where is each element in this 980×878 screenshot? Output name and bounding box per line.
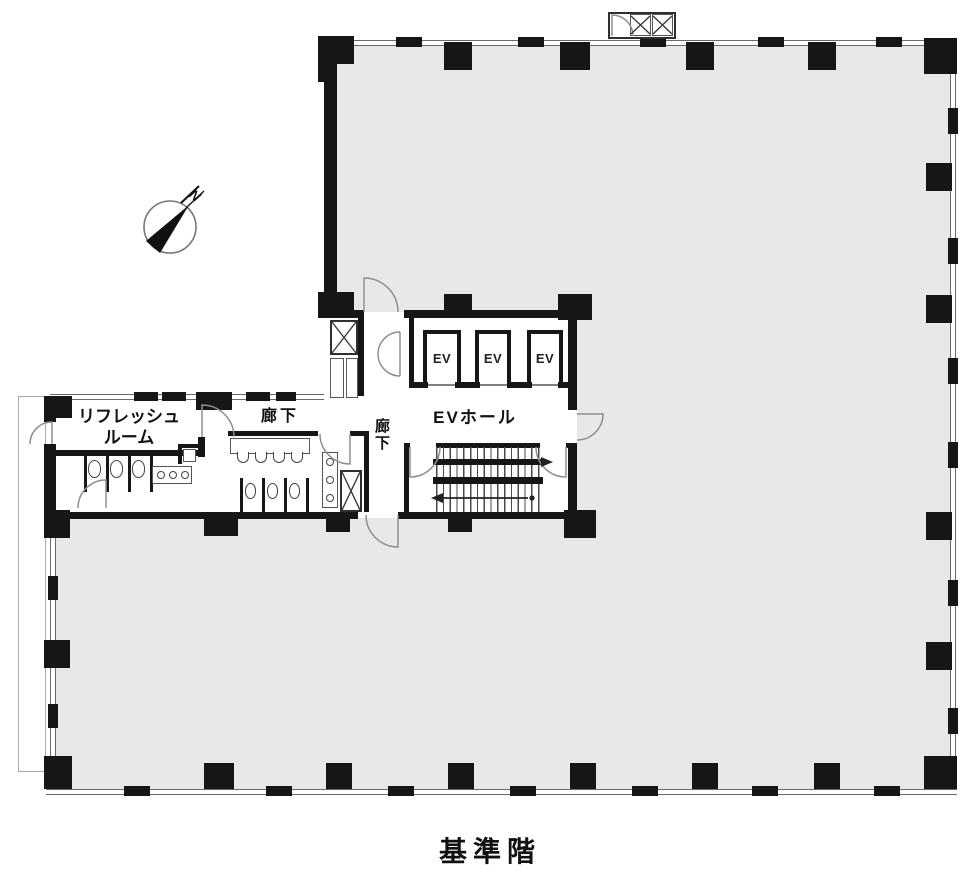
urinal <box>273 452 285 463</box>
column <box>44 510 70 538</box>
wall-segment <box>46 512 358 519</box>
wall-segment <box>409 318 414 388</box>
column <box>326 512 350 532</box>
column <box>204 512 238 536</box>
elevator-car: EV <box>527 330 563 382</box>
wall-segment <box>46 789 957 795</box>
service-box <box>330 358 344 398</box>
window-dash <box>752 786 778 796</box>
north-label: N <box>186 186 205 205</box>
wall-segment <box>404 310 577 318</box>
wall-segment <box>228 431 318 436</box>
elevator-car-label: EV <box>433 351 451 366</box>
wall-segment <box>44 444 56 518</box>
column <box>448 763 474 789</box>
wall-segment <box>558 382 577 388</box>
duct-shaft <box>652 14 673 36</box>
toilet-fixture <box>245 483 256 499</box>
wall-segment <box>566 443 577 448</box>
elevator-car-label: EV <box>536 351 554 366</box>
column <box>924 756 957 789</box>
wall-segment <box>56 450 198 456</box>
column <box>318 292 354 318</box>
wall-segment <box>364 431 369 512</box>
column <box>560 42 590 70</box>
column <box>44 756 72 789</box>
refresh-room-label-line2: ルーム <box>58 427 200 448</box>
elevator-car: EV <box>475 330 511 382</box>
stair-landing-bar <box>433 477 543 484</box>
elevator-car-label: EV <box>484 351 502 366</box>
wash-basin <box>169 471 177 479</box>
window-dash <box>948 708 958 734</box>
toilet-stall-partition <box>106 456 109 492</box>
duct-shaft <box>340 470 362 512</box>
window-dash <box>134 392 158 401</box>
service-box <box>346 358 358 398</box>
column <box>444 42 472 70</box>
window-dash <box>948 108 958 134</box>
wall-segment <box>358 310 364 396</box>
window-dash <box>48 704 58 728</box>
column <box>326 763 352 789</box>
wall-segment <box>398 512 577 519</box>
column <box>692 763 718 789</box>
elevator-car: EV <box>423 330 461 382</box>
corridor-vertical-label: 廊下 <box>371 418 392 466</box>
wall-segment <box>568 444 577 518</box>
window-dash <box>396 37 422 47</box>
window-dash <box>510 786 536 796</box>
compass: N <box>144 186 205 253</box>
wash-basin <box>181 471 189 479</box>
stair-landing-bar <box>433 459 543 465</box>
window-dash <box>124 786 150 796</box>
toilet-fixture <box>88 460 101 478</box>
balcony-strip <box>18 396 46 772</box>
column <box>926 295 952 323</box>
window-dash <box>876 37 902 47</box>
duct-shaft <box>330 320 358 355</box>
toilet-fixture <box>132 460 145 478</box>
refresh-room-label-line1: リフレッシュ <box>58 406 200 427</box>
column <box>318 36 336 82</box>
column <box>558 294 592 320</box>
toilet-fixture <box>110 460 123 478</box>
refresh-room-label: リフレッシュ ルーム <box>58 406 200 448</box>
column <box>570 763 596 789</box>
window-dash <box>388 786 414 796</box>
wash-basin <box>326 458 334 466</box>
window-dash <box>632 786 658 796</box>
toilet-fixture <box>267 483 278 499</box>
column <box>196 392 232 410</box>
column <box>444 294 472 312</box>
column <box>814 763 840 789</box>
column <box>926 163 952 191</box>
floor-plan: EV EV EV <box>0 0 980 878</box>
window-dash <box>48 576 58 600</box>
urinal <box>291 452 303 463</box>
wall-segment <box>568 310 577 410</box>
window-dash <box>948 580 958 606</box>
column <box>686 42 714 70</box>
column <box>564 510 596 538</box>
column <box>924 38 957 74</box>
corridor-label: 廊下 <box>240 402 320 426</box>
toilet-stall-partition <box>240 478 243 512</box>
window-dash <box>758 37 784 47</box>
column <box>926 512 952 540</box>
column <box>448 512 472 532</box>
duct-shaft <box>630 14 651 36</box>
tenant-area-upper <box>337 45 950 312</box>
column <box>44 640 70 668</box>
window-dash <box>162 392 186 401</box>
wall-segment <box>507 382 532 388</box>
window-dash <box>518 37 544 47</box>
ev-hall-label: EVホール <box>390 403 560 428</box>
toilet-stall-partition <box>306 478 309 512</box>
wash-basin <box>157 471 165 479</box>
floor-caption: 基準階 <box>0 830 980 870</box>
window-dash <box>276 392 296 401</box>
urinal <box>255 452 267 463</box>
column <box>204 763 234 789</box>
window-dash <box>948 358 958 384</box>
toilet-stall-partition <box>84 456 87 492</box>
window-dash <box>948 442 958 468</box>
wash-basin <box>326 494 334 502</box>
wall-segment <box>404 443 409 512</box>
column <box>926 642 952 670</box>
wall-segment <box>950 40 956 789</box>
urinal <box>237 452 249 463</box>
window-dash <box>948 238 958 264</box>
wash-basin <box>326 476 334 484</box>
toilet-stall-partition <box>284 478 287 512</box>
tenant-area-right <box>577 312 950 518</box>
window-dash <box>874 786 900 796</box>
window-dash <box>246 392 270 401</box>
toilet-stall-partition <box>262 478 265 512</box>
window-dash <box>266 786 292 796</box>
toilet-stall-partition <box>128 456 131 492</box>
wall-segment <box>409 382 428 388</box>
toilet-fixture <box>289 483 300 499</box>
wall-segment <box>455 382 480 388</box>
tenant-area-lower <box>56 518 950 790</box>
service-box <box>183 449 196 462</box>
column <box>808 42 836 70</box>
